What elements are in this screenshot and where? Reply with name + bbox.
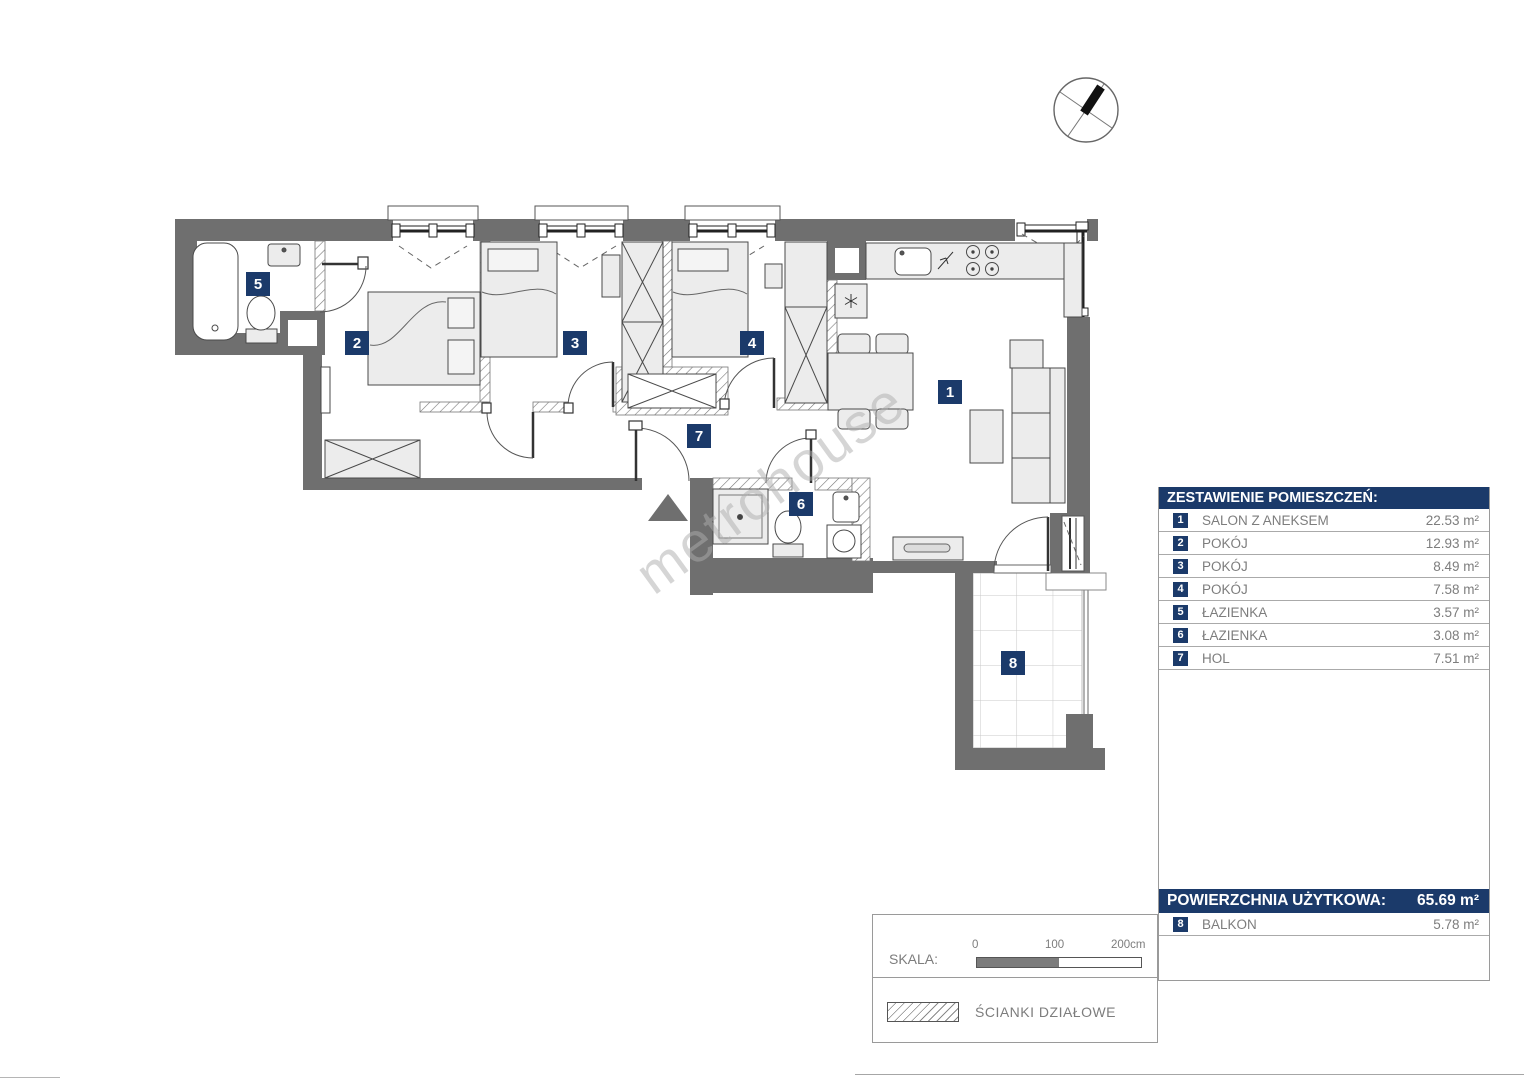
shelf-3 <box>602 255 620 297</box>
room-label: POKÓJ <box>1202 559 1433 574</box>
sheet-bottom-border-left <box>0 1077 60 1078</box>
row-number-badge: 1 <box>1173 513 1188 528</box>
kitchen-shaft <box>835 248 859 273</box>
sofa <box>1012 368 1065 503</box>
room-badge-3: 3 <box>563 331 587 355</box>
table-row: 5 ŁAZIENKA 3.57 m² <box>1159 601 1489 624</box>
scale-bar <box>976 957 1142 968</box>
row-number-badge: 7 <box>1173 651 1188 666</box>
partition-hatch-swatch <box>887 1002 959 1022</box>
table-row: 2 POKÓJ 12.93 m² <box>1159 532 1489 555</box>
room-area: 12.93 m² <box>1426 536 1489 551</box>
chair <box>838 334 870 354</box>
table-spacer <box>1159 670 1489 889</box>
room-summary-table: ZESTAWIENIE POMIESZCZEŃ: 1 SALON Z ANEKS… <box>1158 487 1490 981</box>
room-badge-1: 1 <box>938 380 962 404</box>
kitchen-counter-return <box>1064 243 1082 317</box>
radiator <box>321 367 330 413</box>
sheet-bottom-border <box>855 1074 1524 1075</box>
row-number-badge: 3 <box>1173 559 1188 574</box>
room-label: BALKON <box>1202 917 1433 932</box>
room-badge-7: 7 <box>687 424 711 448</box>
partition-label: ŚCIANKI DZIAŁOWE <box>975 1004 1116 1020</box>
room-area: 3.08 m² <box>1433 628 1489 643</box>
scale-tick-200: 200cm <box>1111 939 1146 951</box>
room-label: ŁAZIENKA <box>1202 628 1433 643</box>
room-area: 7.58 m² <box>1433 582 1489 597</box>
room-area: 8.49 m² <box>1433 559 1489 574</box>
table-row: 3 POKÓJ 8.49 m² <box>1159 555 1489 578</box>
table-empty-row <box>1159 936 1489 980</box>
room-label: POKÓJ <box>1202 536 1426 551</box>
chair <box>876 334 908 354</box>
table-row: 4 POKÓJ 7.58 m² <box>1159 578 1489 601</box>
row-number-badge: 6 <box>1173 628 1188 643</box>
entrance-arrow-icon <box>648 494 688 521</box>
toilet-6-tank <box>773 544 803 557</box>
total-area-bar: POWIERZCHNIA UŻYTKOWA: 65.69 m² <box>1159 889 1489 913</box>
table-header: ZESTAWIENIE POMIESZCZEŃ: <box>1159 487 1489 509</box>
room-area: 7.51 m² <box>1433 651 1489 666</box>
toilet-5-tank <box>246 329 277 343</box>
row-number-badge: 4 <box>1173 582 1188 597</box>
row-number-badge: 2 <box>1173 536 1188 551</box>
room-label: ŁAZIENKA <box>1202 605 1433 620</box>
room-badge-2: 2 <box>345 331 369 355</box>
sink-5 <box>268 244 300 266</box>
partition-legend-box: ŚCIANKI DZIAŁOWE <box>872 977 1158 1043</box>
room-area: 5.78 m² <box>1433 917 1489 932</box>
scale-box: SKALA: 0 100 200cm <box>872 914 1158 978</box>
scale-label: SKALA: <box>889 951 938 967</box>
compass-icon <box>1054 78 1118 142</box>
room-badge-6: 6 <box>789 492 813 516</box>
room-badge-5: 5 <box>246 272 270 296</box>
total-area-value: 65.69 m² <box>1417 892 1479 910</box>
room-label: HOL <box>1202 651 1433 666</box>
coffee-table <box>970 410 1003 463</box>
room-area: 22.53 m² <box>1426 513 1489 528</box>
scale-tick-100: 100 <box>1045 939 1064 951</box>
toilet-5-bowl <box>247 296 275 330</box>
side-table <box>1010 340 1043 368</box>
shelf-4 <box>765 264 782 288</box>
dining-table <box>828 353 913 410</box>
chair <box>838 409 870 429</box>
chair <box>876 409 908 429</box>
table-row: 1 SALON Z ANEKSEM 22.53 m² <box>1159 509 1489 532</box>
row-number-badge: 8 <box>1173 917 1188 932</box>
room-label: POKÓJ <box>1202 582 1433 597</box>
table-row: 6 ŁAZIENKA 3.08 m² <box>1159 624 1489 647</box>
room-badge-4: 4 <box>740 331 764 355</box>
room-badge-8: 8 <box>1001 651 1025 675</box>
room-label: SALON Z ANEKSEM <box>1202 513 1426 528</box>
floorplan-sheet: metrohouse 1 2 3 4 5 6 7 8 ZESTAWIENIE P… <box>0 0 1527 1080</box>
table-row: 7 HOL 7.51 m² <box>1159 647 1489 670</box>
table-row-balcony: 8 BALKON 5.78 m² <box>1159 913 1489 936</box>
total-area-label: POWIERZCHNIA UŻYTKOWA: <box>1167 892 1386 910</box>
row-number-badge: 5 <box>1173 605 1188 620</box>
scale-tick-0: 0 <box>972 939 978 951</box>
room-area: 3.57 m² <box>1433 605 1489 620</box>
shaft <box>288 320 317 346</box>
